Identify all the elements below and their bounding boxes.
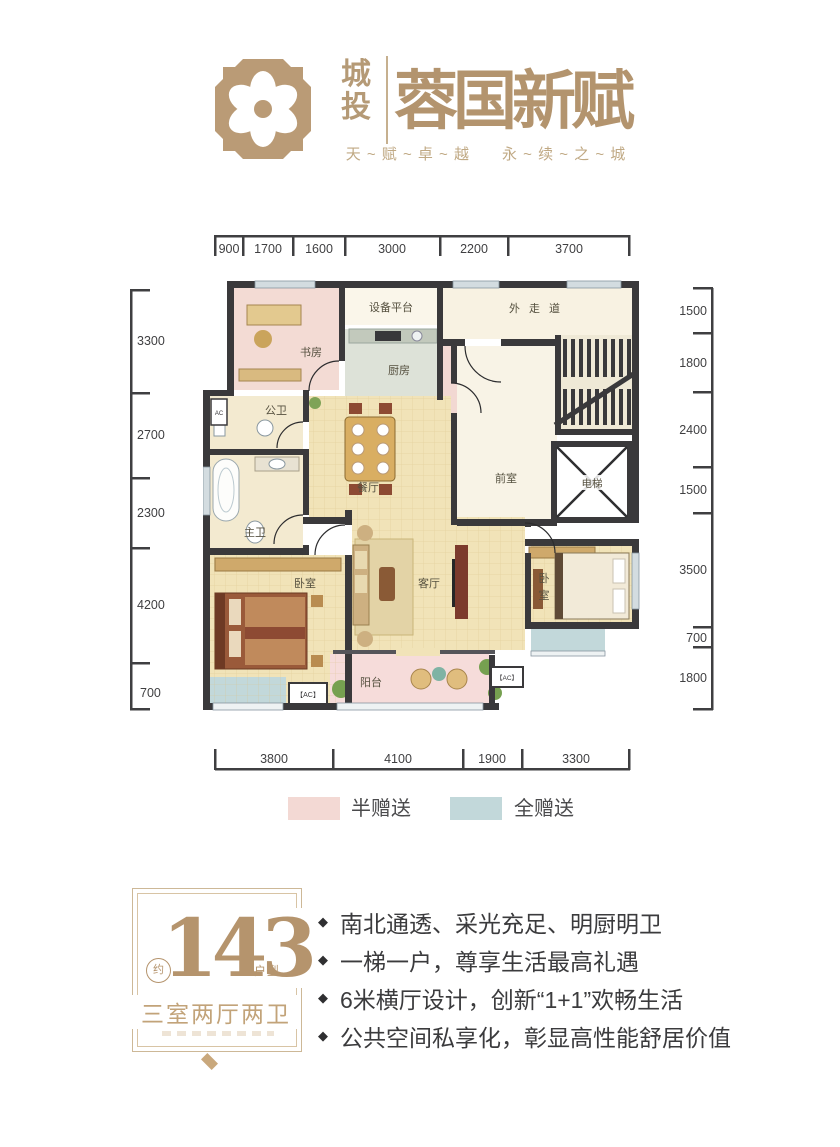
ac-label-small: AC [215,411,224,417]
legend-swatch-half-gift [288,797,340,820]
unit-layout-text: 三室两厅两卫 [131,995,301,1029]
feature-text: 一梯一户，尊享生活最高礼遇 [340,943,639,977]
label-dining: 餐厅 [357,480,379,494]
label-elevator: 电梯 [582,477,603,490]
brand-name: 蓉国新赋 [394,50,644,142]
dim-right-2: 2400 [679,423,707,437]
brand-cn-vertical: 城投 [341,58,375,124]
dim-right-4: 3500 [679,563,707,577]
label-study: 书房 [300,346,322,359]
feature-list: ◆ 南北通透、采光充足、明厨明卫 ◆ 一梯一户，尊享生活最高礼遇 ◆ 6米横厅设… [318,908,758,1060]
floorplan: 【AC】 【AC】 AC 书房 设备平台 厨房 外走道 公卫 餐厅 前室 电梯 … [203,277,643,713]
feature-item: ◆ 6米横厅设计，创新“1+1”欢畅生活 [318,984,758,1012]
feature-text: 6米横厅设计，创新“1+1”欢畅生活 [340,981,683,1015]
feature-item: ◆ 南北通透、采光充足、明厨明卫 [318,908,758,936]
dimension-line-top: 900 1700 1600 3000 2200 3700 [205,230,645,260]
dim-left-0: 3300 [137,334,165,348]
dim-bottom-1: 4100 [384,752,412,766]
dim-top-1: 1700 [254,242,282,256]
dim-top-4: 2200 [460,242,488,256]
flyer-page: 城投 蓉国新赋 天 ~ 赋 ~ 卓 ~ 越 永 ~ 续 ~ 之 ~ 城 900 … [0,0,840,1147]
legend-swatch-full-gift [450,797,502,820]
brand-tagline: 天 ~ 赋 ~ 卓 ~ 越 永 ~ 续 ~ 之 ~ 城 [328,143,644,164]
unit-type-suffix: 户型 [254,962,280,979]
feature-text: 公共空间私享化，彰显高性能舒居价值 [340,1019,731,1053]
feature-text: 南北通透、采光充足、明厨明卫 [340,905,662,939]
dim-top-3: 3000 [378,242,406,256]
ac-label-right: 【AC】 [496,674,518,682]
label-corridor: 外走道 [509,301,569,315]
label-living: 客厅 [418,576,440,590]
legend-label-half-gift: 半赠送 [351,797,411,821]
label-front-room: 前室 [495,471,517,485]
diamond-bullet-icon: ◆ [318,914,328,930]
dim-right-0: 1500 [679,304,707,318]
unit-area-number: 143 [158,908,315,988]
dim-left-1: 2700 [137,428,165,442]
brand-divider [386,56,388,144]
balcony-opening [396,648,440,656]
dim-right-3: 1500 [679,483,707,497]
approx-circle: 约 [146,958,171,983]
dimension-line-bottom: 3800 4100 1900 3300 [205,742,645,774]
label-bedroom-right-1: 卧 [539,572,550,585]
label-equipment: 设备平台 [369,300,413,314]
dim-left-4: 700 [140,686,161,700]
feature-item: ◆ 公共空间私享化，彰显高性能舒居价值 [318,1022,758,1050]
label-bedroom-right-2: 室 [539,588,550,602]
dim-bottom-2: 1900 [478,752,506,766]
dim-top-2: 1600 [305,242,333,256]
diamond-bullet-icon: ◆ [318,990,328,1006]
label-public-bath: 公卫 [265,405,287,417]
diamond-bullet-icon: ◆ [318,1028,328,1044]
label-bedroom-left: 卧室 [294,576,316,590]
label-kitchen: 厨房 [388,364,410,377]
feature-item: ◆ 一梯一户，尊享生活最高礼遇 [318,946,758,974]
dim-bottom-0: 3800 [260,752,288,766]
dim-left-2: 2300 [137,506,165,520]
badge-subtext-decoration [162,1031,274,1036]
dim-bottom-3: 3300 [562,752,590,766]
brand-flower-logo [213,57,313,161]
staircase [555,339,635,425]
legend-label-full-gift: 全赠送 [514,797,574,821]
dim-right-5: 700 [686,631,707,645]
label-master-bath: 主卫 [244,526,266,539]
badge-diamond-icon [201,1053,218,1070]
dimension-line-right: 1500 1800 2400 1500 3500 700 1800 [645,283,721,715]
dimension-line-left: 3300 2700 2300 4200 700 [118,283,178,715]
dim-right-1: 1800 [679,356,707,370]
dim-left-3: 4200 [137,598,165,612]
label-balcony: 阳台 [360,675,382,689]
diamond-bullet-icon: ◆ [318,952,328,968]
ac-label-left: 【AC】 [296,691,320,699]
dim-right-6: 1800 [679,671,707,685]
dim-top-5: 3700 [555,242,583,256]
dim-top-0: 900 [219,242,240,256]
